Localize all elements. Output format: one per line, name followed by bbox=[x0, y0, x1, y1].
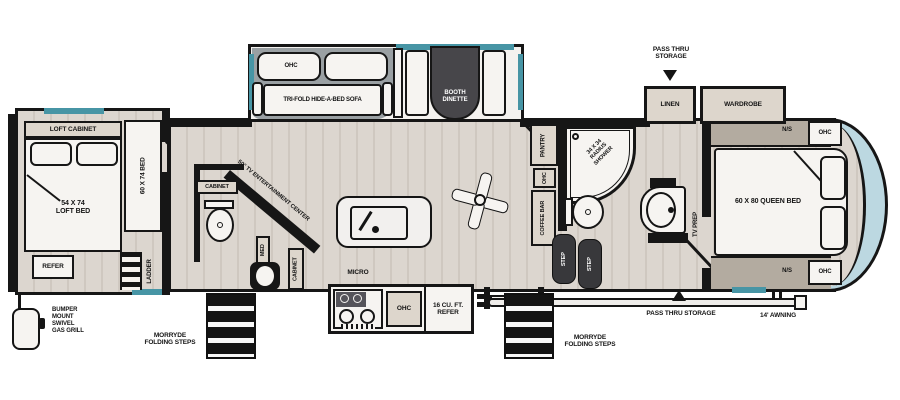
bed-pillow-2 bbox=[820, 206, 846, 250]
cabinet-top: CABINET bbox=[196, 180, 238, 194]
ns-top-label: N/S bbox=[774, 127, 800, 134]
pantry: PANTRY bbox=[530, 124, 558, 166]
window-strip-garage-top bbox=[44, 108, 104, 114]
shower-head-icon bbox=[572, 133, 579, 140]
loft-bed-pillow-2 bbox=[76, 142, 118, 166]
cabinet-bottom: CABINET bbox=[288, 248, 304, 290]
range-stove bbox=[333, 289, 383, 329]
queen-bed-label: 60 X 80 QUEEN BED bbox=[735, 198, 801, 206]
bath-toilet-flush bbox=[585, 209, 591, 215]
refer-small: REFER bbox=[32, 255, 74, 279]
bed-pillow-1 bbox=[820, 156, 846, 200]
awning-bracket-bottom bbox=[477, 302, 486, 307]
arrow-down-icon bbox=[663, 70, 677, 81]
sofa-ohc-label: OHC bbox=[278, 60, 304, 72]
stove-vent-grill bbox=[341, 324, 375, 329]
awning-bracket-top bbox=[477, 294, 489, 299]
half-bath-toilet-flush bbox=[217, 222, 223, 228]
sofa-back-cushion-2 bbox=[324, 52, 388, 81]
folding-steps-right-label: MORRYDE FOLDING STEPS bbox=[558, 334, 622, 349]
interior-step-1: STEP bbox=[552, 234, 576, 284]
vanity-faucet bbox=[668, 207, 674, 213]
gas-grill-label: BUMPER MOUNT SWIVEL GAS GRILL bbox=[52, 307, 102, 335]
garage-bed-vertical: 60 X 74 BED bbox=[124, 120, 162, 232]
ohc-bottom-cabinet: OHC bbox=[808, 260, 842, 285]
folding-steps-left-label: MORRYDE FOLDING STEPS bbox=[138, 332, 202, 347]
awning-endcap bbox=[794, 295, 807, 310]
linen-cabinet: LINEN bbox=[644, 86, 696, 124]
ns-bottom-label: N/S bbox=[774, 268, 800, 275]
micro-label: MICRO bbox=[334, 269, 382, 276]
dinette-label: BOOTH DINETTE bbox=[443, 90, 468, 104]
window-strip-slide-right bbox=[518, 54, 523, 110]
bedroom-wall bbox=[702, 121, 711, 217]
dinette-bench-right bbox=[482, 50, 506, 116]
folding-steps-left bbox=[206, 293, 256, 359]
sofa-armrest-left bbox=[252, 82, 263, 116]
half-bath-sink-bowl bbox=[256, 266, 274, 286]
island-faucet-base bbox=[372, 226, 379, 233]
awning-label: 14' AWNING bbox=[748, 312, 808, 319]
burner-small-1 bbox=[340, 294, 349, 303]
pantry-ohc: OHC bbox=[533, 168, 556, 188]
kitchen-ohc: OHC bbox=[386, 291, 422, 327]
refer-large: 16 CU. FT. REFER bbox=[424, 287, 470, 331]
dinette-table: BOOTH DINETTE bbox=[430, 46, 480, 120]
burner-large-1 bbox=[339, 309, 354, 324]
med-cabinet: MED bbox=[256, 236, 270, 264]
loft-bed-pillow-1 bbox=[30, 142, 72, 166]
sofa-armrest-right bbox=[382, 82, 393, 116]
interior-step-2: STEP bbox=[578, 239, 602, 289]
awning-mount-tick-1 bbox=[772, 289, 775, 298]
ohc-top-cabinet: OHC bbox=[808, 121, 842, 146]
sofa-label: TRI-FOLD HIDE-A-BED SOFA bbox=[283, 97, 361, 104]
dinette-bench-left bbox=[405, 50, 429, 116]
folding-steps-right bbox=[504, 293, 554, 359]
burner-large-2 bbox=[360, 309, 375, 324]
pass-thru-bottom-label: PASS THRU STORAGE bbox=[626, 310, 736, 317]
pass-thru-top-label: PASS THRU STORAGE bbox=[634, 46, 708, 61]
island-sink bbox=[350, 206, 408, 240]
arrow-up-icon bbox=[672, 290, 686, 301]
wardrobe-cabinet: WARDROBE bbox=[700, 86, 786, 124]
burner-small-2 bbox=[353, 294, 362, 303]
window-strip-bedroom-bottom bbox=[732, 287, 766, 293]
sofa-seat: TRI-FOLD HIDE-A-BED SOFA bbox=[263, 84, 382, 116]
loft-bed-label: 54 X 74 LOFT BED bbox=[30, 200, 116, 216]
top-wall-left-segment bbox=[168, 118, 252, 127]
loft-cabinet: LOFT CABINET bbox=[24, 121, 122, 138]
awning-mount-tick-2 bbox=[779, 289, 782, 298]
bedroom-wall-stub bbox=[702, 268, 711, 290]
ladder-label: LADDER bbox=[142, 250, 158, 292]
fan-hub bbox=[474, 194, 486, 206]
gas-grill-icon bbox=[12, 308, 40, 350]
slide-divider-panel bbox=[393, 48, 403, 118]
gas-grill-knob bbox=[39, 318, 45, 329]
ceiling-fan bbox=[452, 172, 508, 228]
floorplan-canvas: BUMPER MOUNT SWIVEL GAS GRILL LOFT CABIN… bbox=[0, 0, 900, 400]
ladder-icon bbox=[120, 252, 142, 290]
